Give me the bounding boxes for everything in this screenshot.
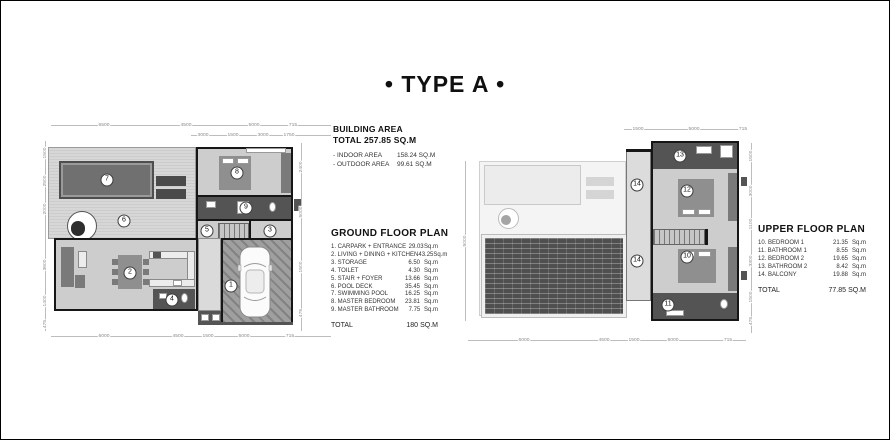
row-unit: Sq.m xyxy=(848,264,866,272)
room-badge-14: 14 xyxy=(631,255,644,268)
sink-fixture xyxy=(206,201,216,208)
row-label: 11. BATHROOM 1 xyxy=(758,248,826,256)
legend-row: 13. BATHROOM 28.42Sq.m xyxy=(758,264,866,272)
toilet-fixture xyxy=(269,202,276,212)
dimension-label: 715 xyxy=(288,123,298,128)
dimension-label: 475 xyxy=(299,308,304,318)
wardrobe xyxy=(281,153,291,193)
room-badge-8: 8 xyxy=(231,167,244,180)
row-label: 5. STAIR + FOYER xyxy=(331,276,398,284)
chair xyxy=(143,269,149,275)
dimension-label: 1500 xyxy=(227,133,239,138)
legend-total-row: TOTAL180SQ.M xyxy=(331,322,438,329)
coffee-table xyxy=(78,251,87,268)
legend-row: 8. MASTER BEDROOM23.81Sq.m xyxy=(331,299,438,307)
building-area-row: - OUTDOOR AREA 99.61 SQ.M xyxy=(333,160,445,169)
planter xyxy=(156,176,186,186)
chair xyxy=(112,269,118,275)
dimension-label: 4500 xyxy=(180,123,192,128)
dimension-label: 1750 xyxy=(283,133,295,138)
row-value: 23.81 xyxy=(398,299,420,307)
room-badge-3: 3 xyxy=(264,225,277,238)
dimension-label: 1500 xyxy=(632,127,644,132)
row-label: 4. TOILET xyxy=(331,268,398,276)
dimension-label: 475 xyxy=(749,316,754,326)
dimension-label: 5000 xyxy=(667,338,679,343)
legend-row: 11. BATHROOM 18.55Sq.m xyxy=(758,248,866,256)
building-area-row: - INDOOR AREA 158.24 SQ.M xyxy=(333,151,445,160)
row-unit: Sq.m xyxy=(433,252,447,260)
room-badge-6: 6 xyxy=(118,215,131,228)
row-value: 8.42 xyxy=(826,264,848,272)
legend-row: 9. MASTER BATHROOM7.75Sq.m xyxy=(331,307,438,315)
ac-unit xyxy=(741,271,747,280)
total-unit: SQ.M xyxy=(418,322,438,329)
stove xyxy=(153,252,161,258)
chair xyxy=(143,259,149,265)
dimension-label: 1500 xyxy=(43,147,48,159)
total-label: TOTAL xyxy=(758,287,828,294)
ground-floor-heading: GROUND FLOOR PLAN xyxy=(331,228,438,239)
faded-tree-icon xyxy=(498,208,519,229)
foyer xyxy=(198,238,221,311)
pillow xyxy=(222,158,234,164)
dimension-label: 5000 xyxy=(463,235,468,247)
dimension-label: 1500 xyxy=(749,150,754,162)
legend-row: 10. BEDROOM 121.35Sq.m xyxy=(758,240,866,248)
chair xyxy=(112,259,118,265)
page-title: • TYPE A • xyxy=(1,71,889,98)
planter xyxy=(156,189,186,199)
row-value: 19.65 xyxy=(826,256,848,264)
wardrobe xyxy=(728,247,737,291)
row-value: 29.03 xyxy=(406,244,424,252)
dimension-label: 5000 xyxy=(299,206,304,218)
row-unit: Sq.m xyxy=(848,272,866,280)
row-label: - INDOOR AREA xyxy=(333,151,397,160)
legend-total-row: TOTAL77.85SQ.M xyxy=(758,287,866,294)
dimension-label: 5000 xyxy=(248,123,260,128)
wardrobe xyxy=(728,173,737,221)
row-label: 7. SWIMMING POOL xyxy=(331,291,398,299)
row-unit: Sq.m xyxy=(420,307,438,315)
row-unit: Sq.m xyxy=(420,268,438,276)
row-value: 43.25 xyxy=(418,252,433,260)
row-unit: Sq.m xyxy=(420,284,438,292)
dimension-label: 1500 xyxy=(628,338,640,343)
upper-floor-legend: UPPER FLOOR PLAN 10. BEDROOM 121.35Sq.m … xyxy=(758,224,866,294)
row-label: 14. BALCONY xyxy=(758,272,826,280)
dimension-label: 1400 xyxy=(43,295,48,307)
row-label: 9. MASTER BATHROOM xyxy=(331,307,399,315)
dimension-label: 475 xyxy=(43,319,48,329)
total-value: 77.85 xyxy=(828,287,846,294)
row-value: 13.66 xyxy=(398,276,420,284)
legend-row: 3. STORAGE6.50Sq.m xyxy=(331,260,438,268)
dimension-label: 3600 xyxy=(43,259,48,271)
dimension-label: 715 xyxy=(723,338,733,343)
row-label: 13. BATHROOM 2 xyxy=(758,264,826,272)
pillow xyxy=(237,158,249,164)
row-value: 99.61 SQ.M xyxy=(397,160,432,169)
legend-row: 4. TOILET4.30Sq.m xyxy=(331,268,438,276)
row-label: 10. BEDROOM 1 xyxy=(758,240,826,248)
dimension-label: 2500 xyxy=(43,175,48,187)
legend-row: 5. STAIR + FOYER13.66Sq.m xyxy=(331,276,438,284)
building-area-block: BUILDING AREA TOTAL 257.85 SQ.M - INDOOR… xyxy=(333,124,445,169)
chair xyxy=(112,279,118,285)
kitchen-counter xyxy=(149,279,195,287)
row-unit: Sq.m xyxy=(420,291,438,299)
row-unit: Sq.m xyxy=(420,276,438,284)
dimension-label: 2000 xyxy=(43,203,48,215)
row-value: 6.50 xyxy=(398,260,420,268)
legend-row: 7. SWIMMING POOL16.25Sq.m xyxy=(331,291,438,299)
tree-icon xyxy=(67,211,97,241)
room-badge-14: 14 xyxy=(631,179,644,192)
row-value: 4.30 xyxy=(398,268,420,276)
room-badge-11: 11 xyxy=(662,299,675,312)
dimension-label: 715 xyxy=(285,334,295,339)
dimension-label: 3000 xyxy=(257,133,269,138)
dimension-label: 4500 xyxy=(598,338,610,343)
row-label: 3. STORAGE xyxy=(331,260,398,268)
row-value: 19.88 xyxy=(826,272,848,280)
upper-floor-plan-drawing: 1500 5000 715 6000 4500 1500 5000 715 15… xyxy=(456,121,770,353)
interior-wall xyxy=(705,229,708,245)
legend-row: 14. BALCONY19.88Sq.m xyxy=(758,272,866,280)
building-area-total: TOTAL 257.85 SQ.M xyxy=(333,135,445,146)
ac-unit xyxy=(741,177,747,186)
window xyxy=(246,148,286,153)
row-unit: Sq.m xyxy=(848,256,866,264)
room-badge-4: 4 xyxy=(166,294,179,307)
row-label: 12. BEDROOM 2 xyxy=(758,256,826,264)
balcony xyxy=(626,151,651,301)
faded-planter xyxy=(586,190,614,199)
room-badge-12: 12 xyxy=(681,185,694,198)
dimension-label: 5000 xyxy=(238,334,250,339)
sink-fixture xyxy=(696,146,712,154)
dimension-label: 3000 xyxy=(749,185,754,197)
dimension-label: 6000 xyxy=(98,334,110,339)
dimension-label: 1500 xyxy=(202,334,214,339)
row-value: 16.25 xyxy=(398,291,420,299)
shower-fixture xyxy=(720,145,733,158)
room-badge-13: 13 xyxy=(674,150,687,163)
toilet-fixture xyxy=(720,299,728,309)
armchair xyxy=(75,275,85,288)
toilet-fixture xyxy=(181,293,188,303)
row-value: 158.24 SQ.M xyxy=(397,151,435,160)
row-unit: Sq.m xyxy=(848,240,866,248)
ground-floor-plan-drawing: 6500 4500 5000 715 3000 1500 3000 1750 6… xyxy=(41,117,333,349)
row-label: 1. CARPARK + ENTRANCE xyxy=(331,244,406,252)
row-value: 21.35 xyxy=(826,240,848,248)
room-badge-10: 10 xyxy=(681,251,694,264)
row-unit: Sq.m xyxy=(424,244,438,252)
stair xyxy=(653,229,705,245)
dimension-label: 3000 xyxy=(197,133,209,138)
legend-row: 2. LIVING + DINING + KITCHEN43.25Sq.m xyxy=(331,252,438,260)
sofa xyxy=(61,247,74,287)
dimension-label: 5000 xyxy=(688,127,700,132)
dimension-label: 4500 xyxy=(172,334,184,339)
building-area-heading: BUILDING AREA xyxy=(333,124,445,135)
row-unit: Sq.m xyxy=(420,260,438,268)
row-label: 2. LIVING + DINING + KITCHEN xyxy=(331,252,418,260)
row-value: 7.75 xyxy=(399,307,421,315)
dimension-label: 2400 xyxy=(299,161,304,173)
dimension-label: 3300 xyxy=(749,255,754,267)
room-badge-5: 5 xyxy=(201,225,214,238)
pillow xyxy=(698,251,711,257)
total-label: TOTAL xyxy=(331,322,406,329)
faded-pool-deck xyxy=(484,165,581,205)
total-unit: SQ.M xyxy=(846,287,866,294)
row-label: 6. POOL DECK xyxy=(331,284,398,292)
legend-row: 6. POOL DECK35.45Sq.m xyxy=(331,284,438,292)
ground-floor-legend: GROUND FLOOR PLAN 1. CARPARK + ENTRANCE2… xyxy=(331,228,438,329)
pillow xyxy=(682,209,695,215)
brochure-page: • TYPE A • 6500 4500 5000 715 3000 1500 … xyxy=(0,0,890,440)
dimension-label: 1500 xyxy=(299,261,304,273)
dimension-label: 715 xyxy=(738,127,748,132)
dimension-label: 6000 xyxy=(518,338,530,343)
entry-step xyxy=(212,314,220,321)
row-label: - OUTDOOR AREA xyxy=(333,160,397,169)
pillow xyxy=(698,209,711,215)
dimension-label: 1500 xyxy=(749,291,754,303)
room-badge-2: 2 xyxy=(124,267,137,280)
sink-fixture xyxy=(173,280,182,286)
legend-row: 1. CARPARK + ENTRANCE29.03Sq.m xyxy=(331,244,438,252)
row-value: 8.55 xyxy=(826,248,848,256)
row-label: 8. MASTER BEDROOM xyxy=(331,299,398,307)
total-value: 180 xyxy=(406,322,418,329)
room-badge-7: 7 xyxy=(101,174,114,187)
dimension-label: 1100 xyxy=(749,218,754,230)
row-value: 35.45 xyxy=(398,284,420,292)
row-unit: Sq.m xyxy=(420,299,438,307)
slatted-roof xyxy=(485,238,623,314)
faded-planter xyxy=(586,177,614,186)
legend-row: 12. BEDROOM 219.65Sq.m xyxy=(758,256,866,264)
room-badge-9: 9 xyxy=(240,202,253,215)
car-icon xyxy=(237,245,273,319)
dimension-label: 6500 xyxy=(98,123,110,128)
dim-line xyxy=(751,143,752,333)
row-unit: Sq.m xyxy=(848,248,866,256)
entry-step xyxy=(201,314,209,321)
room-badge-1: 1 xyxy=(225,280,238,293)
upper-floor-heading: UPPER FLOOR PLAN xyxy=(758,224,866,235)
